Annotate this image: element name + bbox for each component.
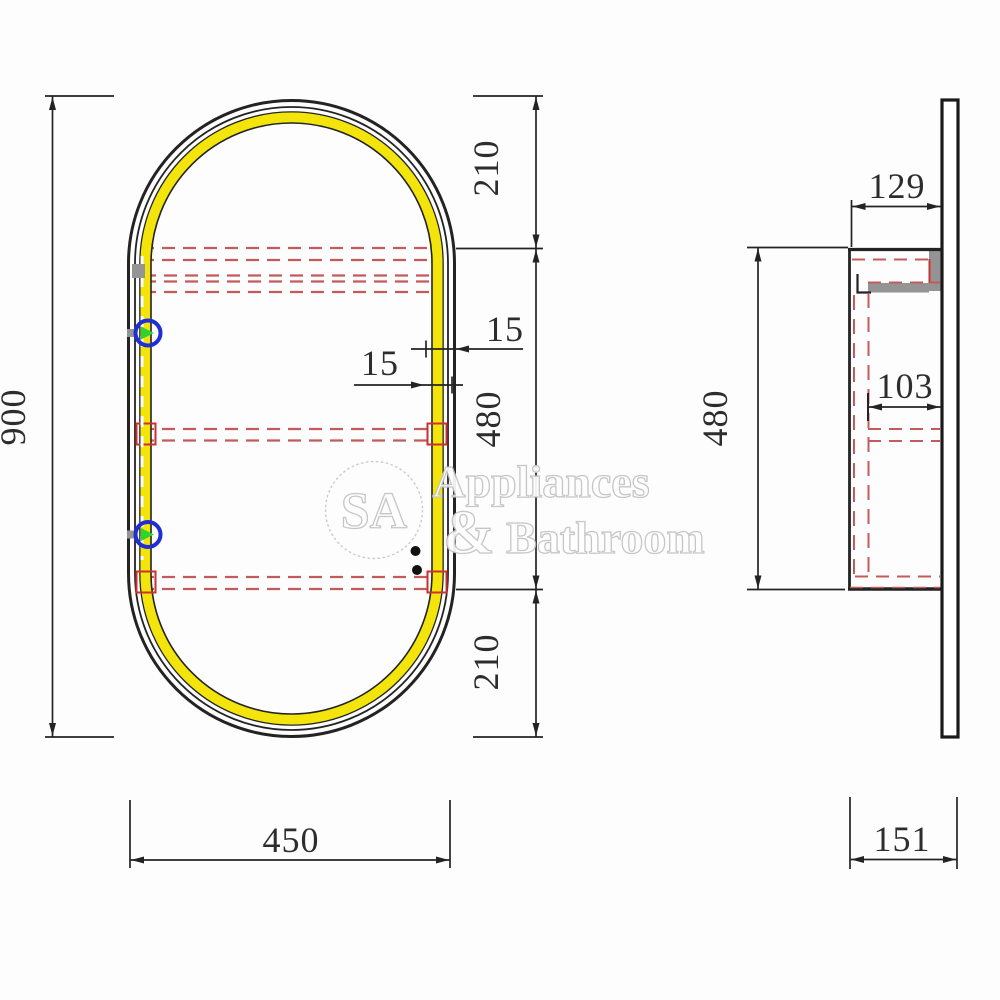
watermark-ampersand: & [443, 499, 495, 567]
cabinet-top-block [929, 251, 942, 291]
watermark-monogram: SA [341, 483, 408, 540]
arrowhead [49, 97, 56, 110]
mirror-outer-outline [129, 101, 455, 737]
dim-label-210-top: 210 [466, 140, 506, 197]
led-strip [146, 118, 438, 720]
dim-15-lower: 15 [354, 343, 463, 394]
watermark-line2: & Bathroom [443, 499, 705, 567]
dim-480-side: 480 [695, 248, 848, 590]
arrowhead [533, 576, 540, 589]
technical-drawing-canvas: 900 210 480 210 15 15 450 [0, 0, 1000, 1000]
arrowhead [456, 346, 469, 353]
arrowhead [755, 249, 762, 262]
arrowhead [533, 723, 540, 736]
mounting-plate [132, 264, 145, 278]
mirror-inner-outline [135, 107, 448, 730]
dim-450: 450 [130, 800, 450, 868]
technical-drawing: 900 210 480 210 15 15 450 [0, 0, 1000, 1000]
dim-label-15-lower: 15 [361, 343, 399, 383]
dim-151: 151 [850, 797, 957, 869]
arrowhead [853, 203, 866, 210]
led-ring [140, 112, 443, 725]
dim-label-480-side: 480 [695, 390, 735, 447]
dim-right-stack: 210 480 210 [456, 96, 543, 737]
dim-15-upper: 15 [411, 309, 524, 358]
led-outer-border [140, 112, 443, 725]
arrowhead [533, 250, 540, 263]
arrowhead [943, 856, 956, 863]
arrowhead [927, 203, 940, 210]
arrowhead [131, 857, 144, 864]
dim-label-15-upper: 15 [486, 309, 524, 349]
dim-label-129: 129 [869, 166, 926, 206]
touch-sensor-dot [411, 546, 421, 556]
front-view [127, 101, 455, 737]
watermark-line2-rest: Bathroom [495, 512, 705, 563]
arrowhead [411, 382, 424, 389]
dim-label-450: 450 [263, 820, 320, 860]
watermark: SA Appliances & Bathroom [326, 456, 705, 567]
arrowhead [436, 857, 449, 864]
dim-label-103: 103 [877, 366, 934, 406]
arrowhead [533, 591, 540, 604]
touch-sensor-dots [411, 546, 423, 575]
dim-label-900: 900 [0, 389, 33, 446]
front-outer-frame [129, 101, 455, 737]
arrowhead [851, 856, 864, 863]
dim-label-480-front: 480 [468, 391, 508, 448]
arrowhead [533, 97, 540, 110]
led-inner-border [151, 123, 432, 714]
side-view: 129 103 480 151 [695, 100, 958, 869]
cabinet-hidden-lines [850, 259, 940, 588]
dim-height-900: 900 [0, 96, 114, 737]
dim-129: 129 [852, 166, 942, 247]
dim-label-151: 151 [874, 819, 931, 859]
arrowhead [755, 576, 762, 589]
touch-sensor-dot [412, 565, 422, 575]
door-panel [942, 100, 958, 737]
arrowhead [49, 723, 56, 736]
dim-label-210-bottom: 210 [466, 634, 506, 691]
cabinet-rail-block [868, 283, 929, 293]
dim-103: 103 [868, 366, 941, 421]
arrowhead [533, 235, 540, 248]
cabinet-body [848, 248, 943, 590]
